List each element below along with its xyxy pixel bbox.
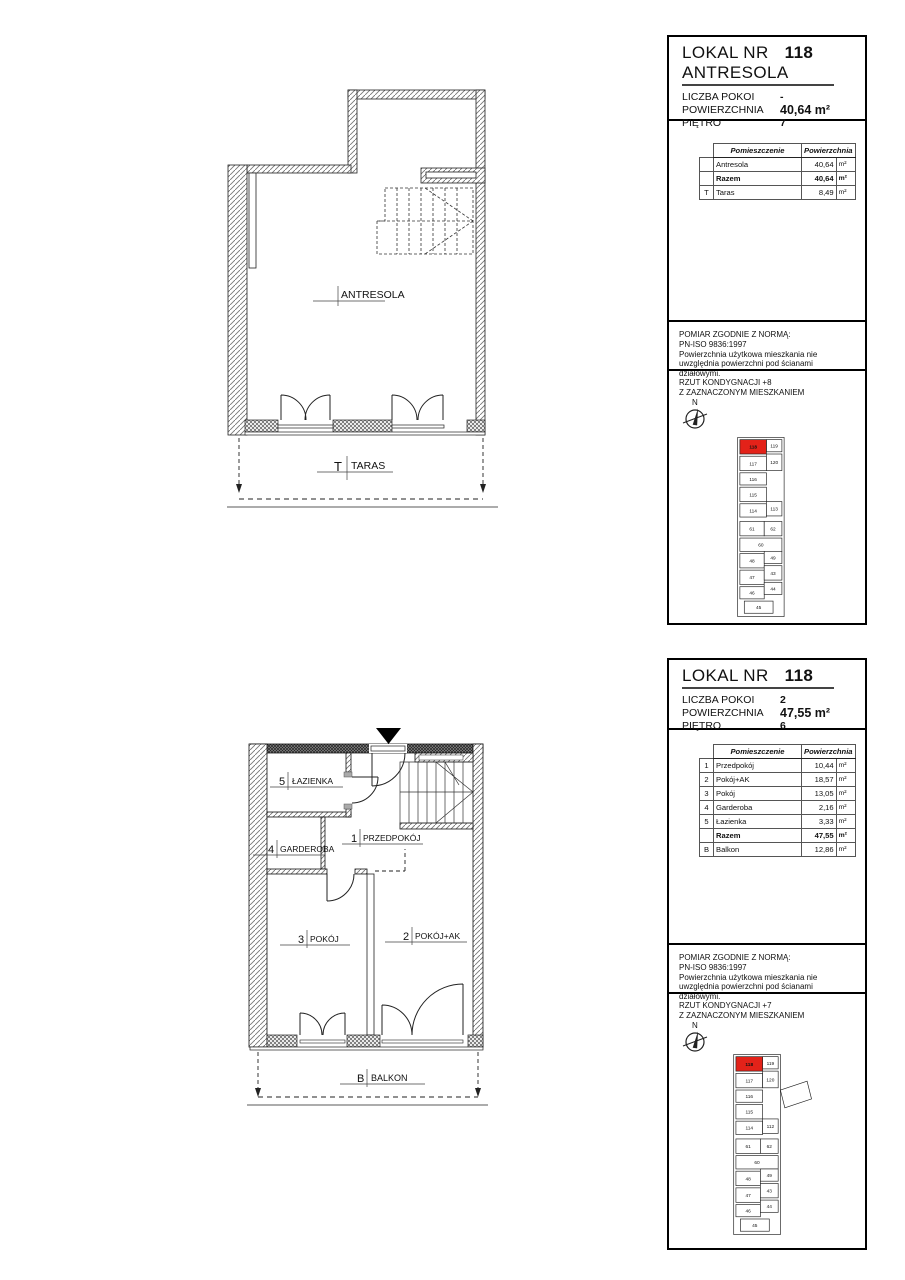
table-row-total: Razem 47,55 m² — [700, 829, 856, 843]
bath-number: 5 — [279, 776, 285, 788]
map-label: 43 — [767, 1189, 773, 1195]
room2-number: 2 — [403, 931, 409, 943]
map-label: 48 — [749, 559, 755, 565]
floorplan-antresola: ANTRESOLA T TARAS — [225, 80, 500, 510]
field-label: POWIERZCHNIA — [682, 707, 780, 720]
map-label: 116 — [745, 1094, 753, 1100]
wall-niche — [249, 173, 256, 268]
field-rooms: LICZBA POKOI 2 — [682, 694, 865, 707]
building-minimap: 118 119 117 120 116 115 114 113 61 62 60… — [731, 433, 793, 621]
room3-door-arc — [327, 874, 354, 901]
measurement-note: POMIAR ZGODNIE Z NORMĄ: PN-ISO 9836:1997… — [669, 943, 865, 992]
map-label: 47 — [745, 1193, 751, 1199]
map-label: 62 — [770, 527, 776, 533]
room-label-antresola: ANTRESOLA — [313, 286, 405, 306]
storey-plan-caption: RZUT KONDYGNACJI +7 — [679, 1001, 855, 1011]
balcony-prefix: B — [357, 1073, 364, 1085]
map-wing — [780, 1081, 811, 1108]
map-label: 62 — [767, 1144, 773, 1150]
arrow-down-icon — [236, 484, 242, 493]
field-value: 7 — [780, 117, 786, 130]
table-row: 5 Łazienka 3,33 m² — [700, 815, 856, 829]
map-label: 117 — [745, 1078, 753, 1084]
map-label: 49 — [770, 555, 776, 561]
unit-title-label: LOKAL NR — [682, 43, 769, 62]
note-line: Powierzchnia użytkowa mieszkania nie — [679, 973, 855, 983]
col-header-area: Powierzchnia — [802, 144, 856, 158]
field-label: LICZBA POKOI — [682, 694, 780, 707]
field-area: POWIERZCHNIA 40,64 m² — [682, 104, 865, 117]
floorplan-apartment: 5 ŁAZIENKA 1 PRZEDPOKÓJ 4 GARDEROBA 3 PO… — [245, 725, 490, 1125]
map-label: 45 — [756, 605, 762, 611]
bathroom-door-arc — [352, 777, 378, 803]
terrace-prefix: T — [334, 459, 342, 474]
table-row: 2 Pokój+AK 18,57 m² — [700, 773, 856, 787]
field-floor: PIĘTRO 6 — [682, 720, 865, 733]
map-label-118: 118 — [745, 1062, 753, 1068]
note-line: PN-ISO 9836:1997 — [679, 963, 855, 973]
title-underline — [682, 84, 834, 86]
bath-name: ŁAZIENKA — [292, 776, 333, 786]
unit-title: LOKAL NR118 — [682, 43, 865, 63]
wardrobe-number: 4 — [268, 844, 274, 856]
field-label: PIĘTRO — [682, 720, 780, 733]
terrace-boundary — [227, 438, 498, 507]
walls — [228, 90, 485, 435]
col-header-room: Pomieszczenie — [714, 745, 802, 759]
table-row: B Balkon 12,86 m² — [700, 843, 856, 857]
unit-subtitle: ANTRESOLA — [682, 63, 865, 83]
balcony-name: BALKON — [371, 1073, 408, 1083]
unit-title: LOKAL NR118 — [682, 666, 865, 686]
field-label: LICZBA POKOI — [682, 91, 780, 104]
area-table: Pomieszczenie Powierzchnia Antresola 40,… — [699, 143, 856, 200]
compass-north-label: N — [692, 398, 698, 407]
window-wall — [245, 420, 485, 435]
hall-name: PRZEDPOKÓJ — [363, 833, 421, 843]
measurement-note: POMIAR ZGODNIE Z NORMĄ: PN-ISO 9836:1997… — [669, 320, 865, 369]
field-value: 6 — [780, 720, 786, 733]
map-label: 112 — [767, 1124, 775, 1130]
map-label: 60 — [754, 1160, 760, 1166]
floorplan-sheet: { "colors": { "highlight": "#e32219" }, … — [0, 0, 905, 1280]
balcony-boundary — [247, 1052, 488, 1105]
stairs — [400, 762, 473, 823]
field-label: PIĘTRO — [682, 117, 780, 130]
building-minimap: 118 119 117 120 116 115 114 112 61 62 60… — [727, 1050, 816, 1239]
map-label: 120 — [766, 1077, 774, 1083]
map-label: 115 — [745, 1110, 753, 1116]
unit-number: 118 — [785, 666, 814, 685]
panel-header: LOKAL NR118 ANTRESOLA LICZBA POKOI - POW… — [669, 37, 865, 121]
terrace-label: T TARAS — [317, 456, 393, 480]
table-header-row: Pomieszczenie Powierzchnia — [700, 745, 856, 759]
terrace-doors — [281, 395, 443, 420]
table-row: 1 Przedpokój 10,44 m² — [700, 759, 856, 773]
walls — [249, 744, 483, 1047]
map-label: 116 — [749, 477, 757, 483]
unit-title-label: LOKAL NR — [682, 666, 769, 685]
balcony-doors — [300, 984, 463, 1035]
storey-plan-section: RZUT KONDYGNACJI +8 Z ZAZNACZONYM MIESZK… — [669, 369, 865, 623]
table-row-total: Razem 40,64 m² — [700, 172, 856, 186]
hall-number: 1 — [351, 833, 357, 845]
area-table: Pomieszczenie Powierzchnia 1 Przedpokój … — [699, 744, 856, 857]
field-rooms: LICZBA POKOI - — [682, 91, 865, 104]
door-jambs — [344, 772, 352, 809]
terrace-name: TARAS — [351, 460, 385, 472]
note-line: Powierzchnia użytkowa mieszkania nie — [679, 350, 855, 360]
table-header-row: Pomieszczenie Powierzchnia — [700, 144, 856, 158]
note-line: PN-ISO 9836:1997 — [679, 340, 855, 350]
map-label-118: 118 — [749, 445, 757, 451]
panel-header: LOKAL NR118 LICZBA POKOI 2 POWIERZCHNIA … — [669, 660, 865, 730]
table-row: T Taras 8,49 m² — [700, 186, 856, 200]
note-line: POMIAR ZGODNIE Z NORMĄ: — [679, 330, 855, 340]
map-label: 113 — [770, 507, 778, 513]
compass-icon: N — [675, 395, 719, 439]
map-label: 46 — [745, 1209, 751, 1215]
col-header-area: Powierzchnia — [802, 745, 856, 759]
map-label: 61 — [749, 527, 755, 533]
field-floor: PIĘTRO 7 — [682, 117, 865, 130]
map-label: 61 — [745, 1144, 751, 1150]
map-label: 45 — [752, 1223, 758, 1229]
storey-plan-section: RZUT KONDYGNACJI +7 Z ZAZNACZONYM MIESZK… — [669, 992, 865, 1248]
field-label: POWIERZCHNIA — [682, 104, 780, 117]
rooms-divider-wall — [367, 874, 374, 1035]
field-value: 47,55 m² — [780, 707, 830, 720]
field-value: 40,64 m² — [780, 104, 830, 117]
compass-icon: N — [675, 1018, 719, 1062]
info-panel-apartment: LOKAL NR118 LICZBA POKOI 2 POWIERZCHNIA … — [667, 658, 867, 1250]
map-label: 43 — [770, 571, 776, 577]
map-label: 48 — [745, 1176, 751, 1182]
col-header-room: Pomieszczenie — [714, 144, 802, 158]
arrow-down-icon — [255, 1088, 261, 1097]
title-underline — [682, 687, 834, 689]
room2-name: POKÓJ+AK — [415, 931, 460, 941]
map-label: 49 — [767, 1173, 773, 1179]
map-label: 114 — [749, 508, 757, 514]
map-label: 119 — [770, 444, 778, 450]
hall-dashed-boundary — [375, 849, 405, 871]
unit-number: 118 — [785, 43, 814, 62]
map-label: 115 — [749, 492, 757, 498]
compass-north-label: N — [692, 1021, 698, 1030]
room3-name: POKÓJ — [310, 934, 339, 944]
entrance-arrow-icon — [376, 728, 401, 744]
arrow-down-icon — [475, 1088, 481, 1097]
map-label: 119 — [767, 1061, 775, 1067]
room-name: ANTRESOLA — [341, 289, 405, 301]
map-label: 44 — [767, 1204, 773, 1210]
map-label: 117 — [749, 461, 757, 467]
stairs-dashed — [377, 188, 473, 254]
room3-number: 3 — [298, 934, 304, 946]
info-panel-antresola: LOKAL NR118 ANTRESOLA LICZBA POKOI - POW… — [667, 35, 867, 625]
arrow-down-icon — [480, 484, 486, 493]
map-label: 120 — [770, 460, 778, 466]
map-label: 60 — [758, 543, 764, 549]
interior-doors — [327, 753, 405, 901]
note-line: POMIAR ZGODNIE Z NORMĄ: — [679, 953, 855, 963]
map-label: 47 — [749, 575, 755, 581]
map-label: 46 — [749, 591, 755, 597]
table-row: 4 Garderoba 2,16 m² — [700, 801, 856, 815]
field-area: POWIERZCHNIA 47,55 m² — [682, 707, 865, 720]
window-wall — [250, 1035, 483, 1050]
map-label: 114 — [745, 1126, 753, 1132]
wardrobe-name: GARDEROBA — [280, 844, 335, 854]
table-row: 3 Pokój 13,05 m² — [700, 787, 856, 801]
table-row: Antresola 40,64 m² — [700, 158, 856, 172]
storey-plan-caption: RZUT KONDYGNACJI +8 — [679, 378, 855, 388]
map-label: 44 — [770, 586, 776, 592]
